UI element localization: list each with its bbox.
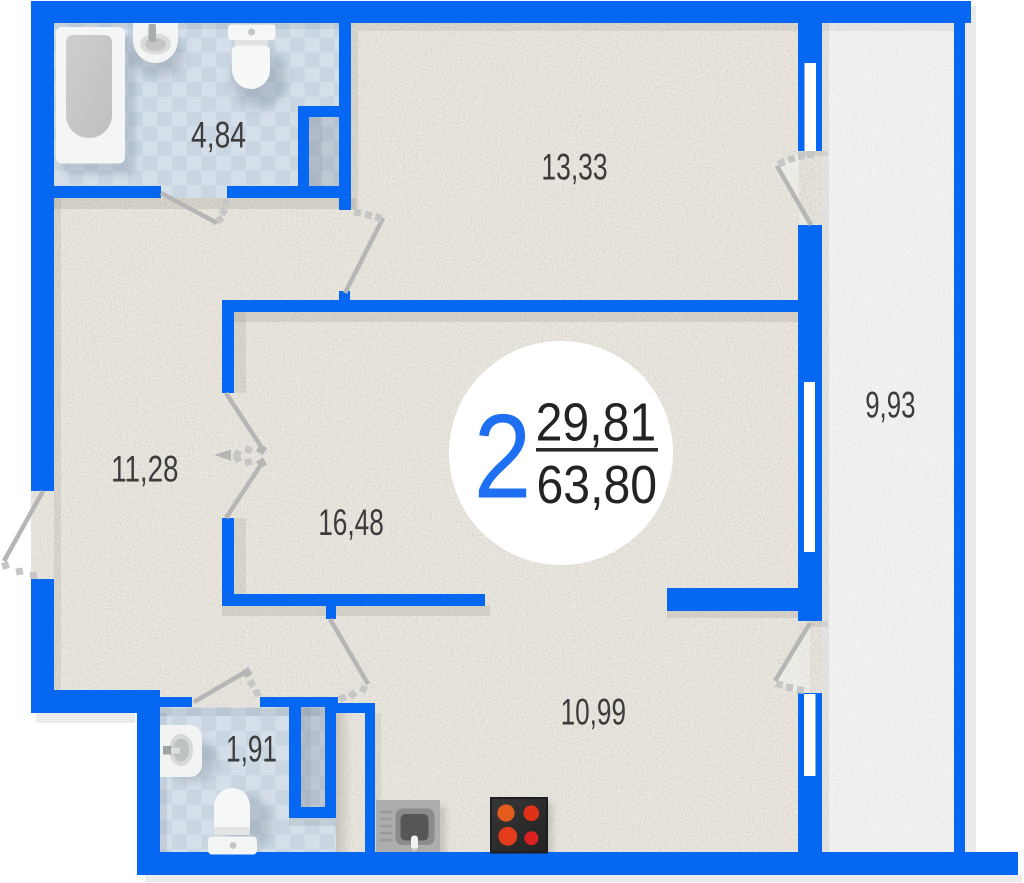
svg-text:1,91: 1,91 xyxy=(226,728,277,770)
svg-text:63,80: 63,80 xyxy=(537,455,658,515)
svg-text:4,84: 4,84 xyxy=(191,114,246,156)
svg-text:16,48: 16,48 xyxy=(318,501,384,543)
svg-text:13,33: 13,33 xyxy=(541,146,607,188)
svg-text:9,93: 9,93 xyxy=(865,384,915,426)
svg-text:29,81: 29,81 xyxy=(536,392,657,452)
svg-text:11,28: 11,28 xyxy=(111,447,178,489)
svg-text:10,99: 10,99 xyxy=(561,691,626,733)
svg-text:2: 2 xyxy=(474,390,532,524)
